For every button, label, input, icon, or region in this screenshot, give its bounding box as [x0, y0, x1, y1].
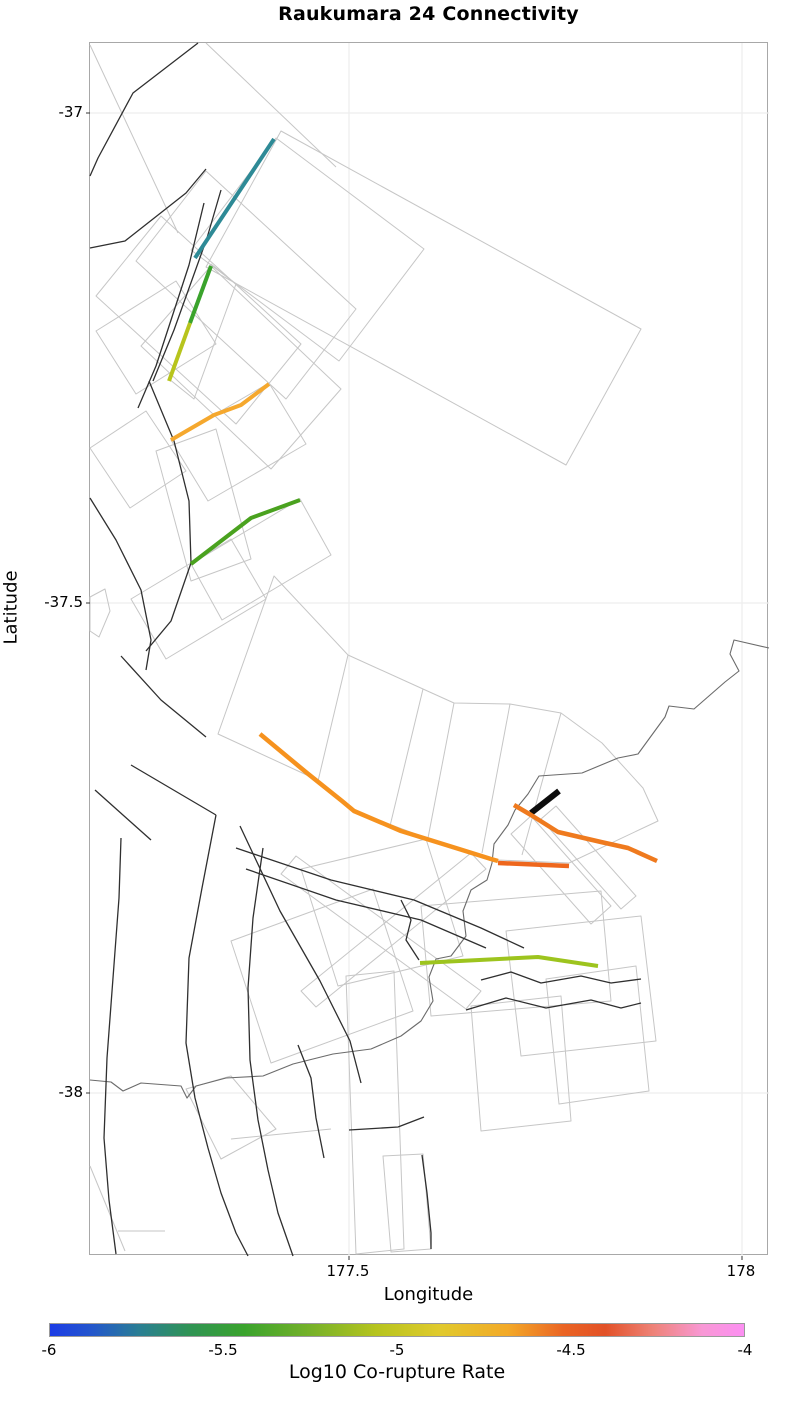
fault-trace [90, 498, 151, 670]
y-tick-label: -37.5 [0, 592, 83, 612]
fault-patch [301, 853, 486, 1007]
fault-trace [90, 169, 206, 248]
fault-patch [541, 806, 636, 909]
y-tick-label: -38 [0, 1082, 83, 1102]
fault-trace [401, 900, 419, 960]
page-title: Raukumara 24 Connectivity [89, 3, 768, 25]
fault-patch [90, 45, 178, 233]
colorbar-tick-label: -6 [9, 1340, 89, 1360]
colorbar-tick-label: -5.5 [183, 1340, 263, 1360]
fault-patch [90, 589, 110, 637]
fault-trace [90, 43, 198, 176]
gridlines [90, 43, 769, 1256]
rupture-segment [420, 957, 598, 966]
fault-patch [482, 704, 510, 853]
rupture-segment [260, 734, 498, 861]
fault-patch [206, 131, 641, 465]
fault-patch [346, 971, 404, 1254]
fault-trace [121, 656, 206, 737]
fault-trace [131, 765, 216, 815]
fault-patches [90, 43, 658, 1254]
fault-patch [546, 966, 649, 1104]
fault-patch [428, 703, 454, 838]
fault-patch [218, 576, 658, 863]
fault-trace [349, 1117, 424, 1130]
y-axis-label: Latitude [1, 621, 22, 645]
rupture-segment [498, 863, 569, 866]
colorbar-tick-label: -4.5 [531, 1340, 611, 1360]
fault-patch [96, 216, 301, 424]
fault-patch [171, 383, 306, 501]
colorbar-gradient [49, 1323, 745, 1337]
fault-trace [240, 826, 361, 1083]
coastline-path [90, 640, 769, 1098]
fault-patch [318, 655, 348, 781]
rupture-segment [190, 266, 211, 323]
colorbar-tick-label: -4 [705, 1340, 785, 1360]
axis-ticks [86, 113, 742, 1260]
fault-traces [90, 43, 641, 1256]
colorbar-tick-label: -5 [357, 1340, 437, 1360]
rupture-segment [195, 139, 274, 258]
map-plot-area [89, 42, 768, 1255]
fault-patch [191, 138, 424, 361]
rupture-segment [514, 805, 657, 861]
fault-patch [90, 411, 186, 508]
fault-trace [481, 972, 641, 983]
x-tick-label: 177.5 [303, 1261, 393, 1281]
rupture-segment [531, 791, 559, 813]
fault-trace [248, 848, 293, 1256]
fault-trace [95, 790, 151, 840]
x-axis-label: Longitude [89, 1284, 768, 1305]
fault-patch [156, 429, 251, 581]
y-tick-label: -37 [0, 102, 83, 122]
fault-patch [390, 689, 423, 826]
fault-patch [231, 889, 413, 1063]
coastline [90, 640, 769, 1098]
map-canvas [90, 43, 769, 1256]
x-tick-label: 178 [696, 1261, 786, 1281]
fault-trace [104, 838, 121, 1254]
fault-trace [186, 815, 248, 1256]
fault-patch [231, 1129, 331, 1139]
fault-patch [506, 916, 656, 1056]
colorbar-label: Log10 Co-rupture Rate [49, 1361, 745, 1383]
fault-patch [522, 713, 561, 855]
fault-patch [471, 996, 571, 1131]
